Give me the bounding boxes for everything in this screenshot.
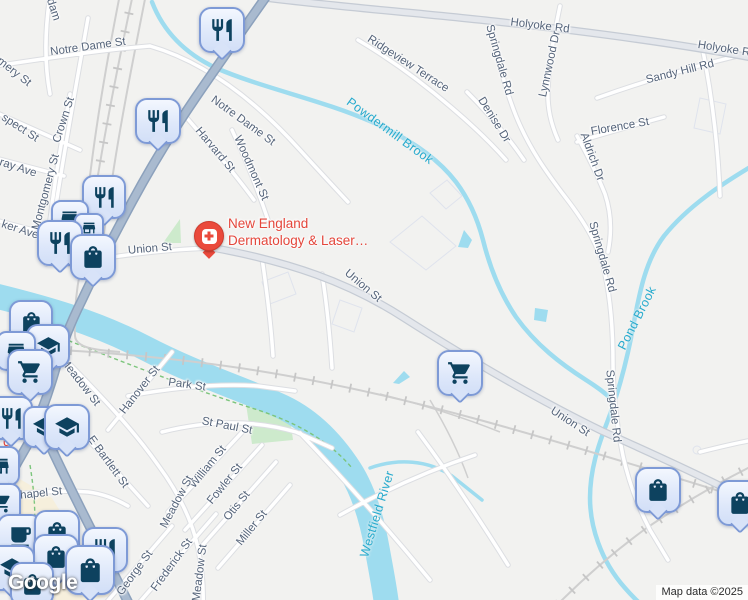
shopping-cart-icon bbox=[0, 492, 12, 514]
bag-pin[interactable] bbox=[70, 234, 116, 280]
grad-pin[interactable] bbox=[44, 404, 90, 450]
restaurant-icon bbox=[209, 17, 235, 43]
cart-pin[interactable] bbox=[7, 349, 53, 395]
shopping-cart-icon bbox=[17, 359, 43, 385]
map-attribution: Map data ©2025 bbox=[656, 585, 748, 600]
google-logo: Google bbox=[8, 571, 77, 595]
restaurant-pin[interactable] bbox=[135, 98, 181, 144]
shopping-bag-icon bbox=[76, 556, 105, 585]
store-pin[interactable] bbox=[0, 446, 20, 486]
storefront-icon bbox=[0, 455, 11, 477]
pins-layer bbox=[0, 0, 748, 600]
map-canvas[interactable]: AdamNotre Dame StNotre Dame Stmery StCro… bbox=[0, 0, 748, 600]
bag-pin[interactable] bbox=[717, 480, 748, 526]
shopping-bag-icon bbox=[727, 490, 748, 516]
restaurant-pin[interactable] bbox=[199, 7, 245, 53]
bag-pin[interactable] bbox=[635, 467, 681, 513]
graduation-cap-icon bbox=[54, 414, 80, 440]
restaurant-icon bbox=[145, 108, 171, 134]
restaurant-icon bbox=[92, 185, 117, 210]
restaurant-icon bbox=[0, 406, 23, 431]
shopping-bag-icon bbox=[645, 477, 671, 503]
shopping-cart-icon bbox=[447, 360, 473, 386]
cart-pin[interactable] bbox=[437, 350, 483, 396]
shopping-bag-icon bbox=[80, 244, 106, 270]
